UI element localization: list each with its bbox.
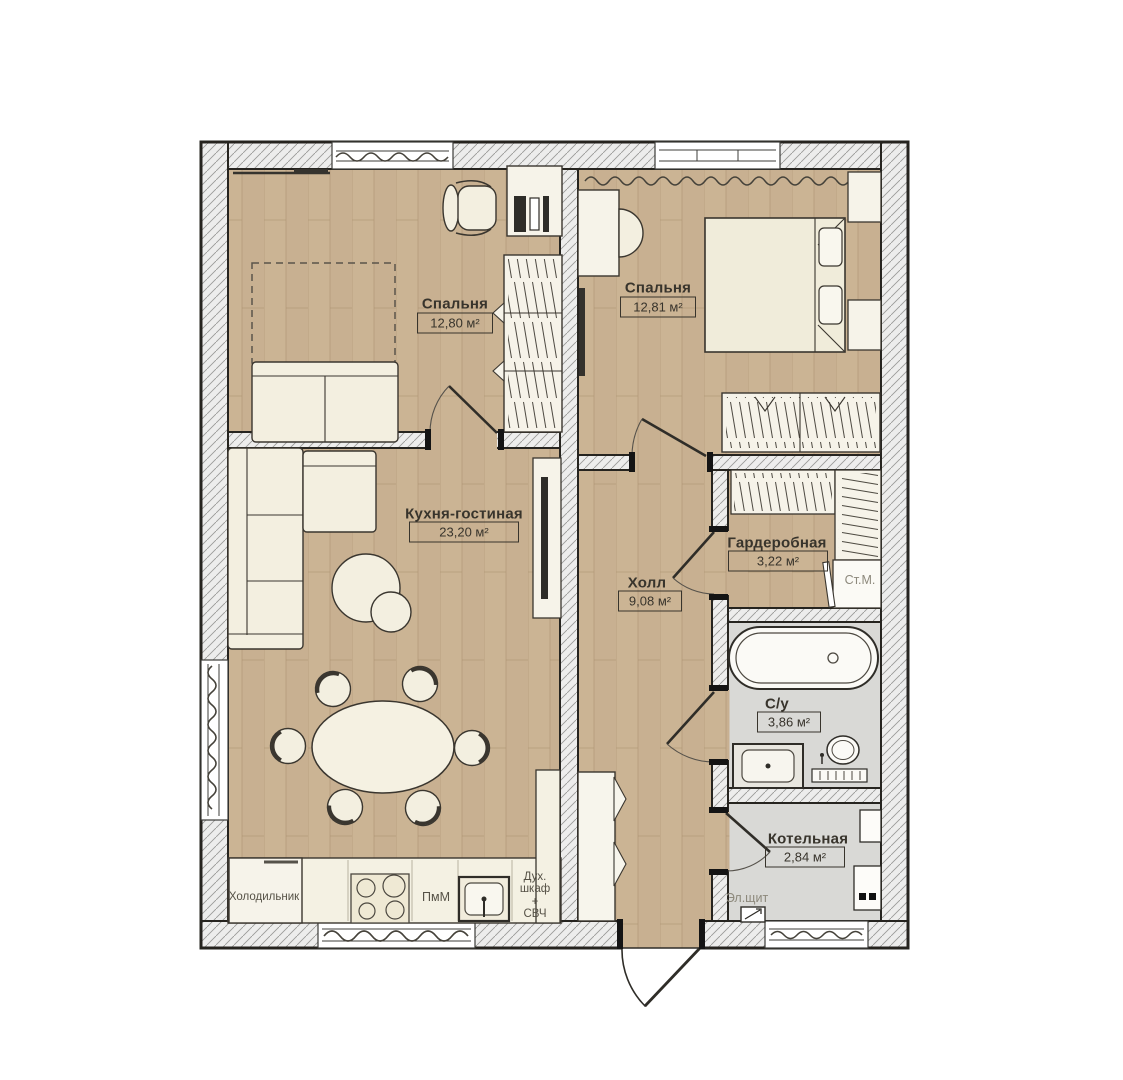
wall-spine [560,169,578,921]
desk-chair [443,181,496,236]
tv-living [541,477,548,599]
dining-table [312,701,454,793]
coffee-table-small [371,592,411,632]
wardrobe-bedroom-2 [722,393,880,452]
oven-microwave-label: Дух. шкаф + СВЧ [520,871,550,921]
tv-console [533,458,561,618]
double-bed [705,218,845,352]
kitchen-living-area: 23,20 м² [409,522,519,543]
wardrobe-bedroom-1 [493,255,562,432]
wardrobe-rail-right [835,470,881,560]
towel-rail [812,769,867,782]
wall-cabinet [860,810,881,842]
electrical-panel-symbol [741,907,765,922]
pillow [819,228,842,266]
desk-bedroom-2 [578,190,619,276]
nightstand [848,172,881,222]
wall-left [201,142,228,948]
wall-right [881,142,908,948]
sofa-bedroom-1 [252,362,398,442]
wall-top [201,142,908,169]
entrance-door [622,948,700,1006]
tv-bedroom-2 [579,288,585,376]
bedroom-2-area: 12,81 м² [620,297,696,318]
bedroom-1-name: Спальня [422,296,488,313]
hall-name: Холл [628,575,666,592]
boiler-unit [854,866,881,910]
wall-bedroom2-south [578,455,881,470]
window-kitchen-south [318,921,475,948]
bathroom-area: 3,86 м² [757,712,821,733]
hall-area: 9,08 м² [618,591,682,612]
window-living-west [201,660,228,820]
dishwasher-label: ПмМ [422,890,450,904]
washing-machine-label: Ст.М. [845,573,876,587]
desk-bedroom-1 [507,166,562,236]
wardrobe-area: 3,22 м² [728,551,828,572]
floor-plan-drawing [0,0,1123,1080]
window-boiler-south [765,921,868,948]
bathroom-name: С/у [765,696,789,713]
boiler-area: 2,84 м² [765,847,845,868]
bathtub [729,627,878,689]
window-bedroom-1 [332,142,453,169]
wall-wardrobe-bath [728,608,881,622]
bathroom-sink [733,744,803,788]
window-bedroom-2 [655,142,780,169]
bedroom-2-name: Спальня [625,280,691,297]
cornice-bracket [294,169,328,174]
fridge-label: Холодильник [229,891,299,903]
kitchen-living-name: Кухня-гостиная [405,506,523,523]
stove [351,874,409,923]
floor-plan: Спальня 12,80 м² Спальня 12,81 м² Кухня-… [0,0,1123,1080]
nightstand [848,300,881,350]
wardrobe-name: Гардеробная [727,535,826,552]
electrical-panel-label: Эл.щит [726,891,768,905]
wall-bath-boiler [728,788,881,803]
boiler-name: Котельная [768,831,848,848]
bedroom-1-area: 12,80 м² [417,313,493,334]
wardrobe-rail-top [731,470,835,514]
kitchen-sink [459,877,509,921]
pillow [819,286,842,324]
